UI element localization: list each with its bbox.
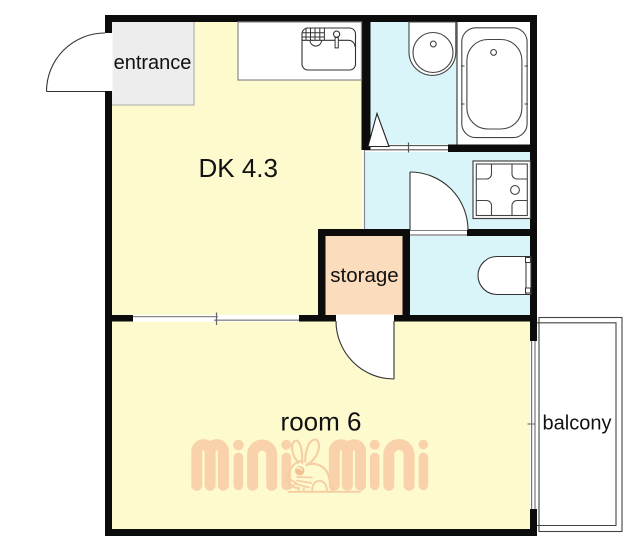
svg-text:balcony: balcony — [543, 413, 612, 435]
svg-text:entrance: entrance — [114, 52, 192, 74]
svg-text:DK 4.3: DK 4.3 — [199, 153, 279, 183]
svg-text:room 6: room 6 — [281, 407, 362, 437]
svg-text:storage: storage — [330, 264, 398, 287]
